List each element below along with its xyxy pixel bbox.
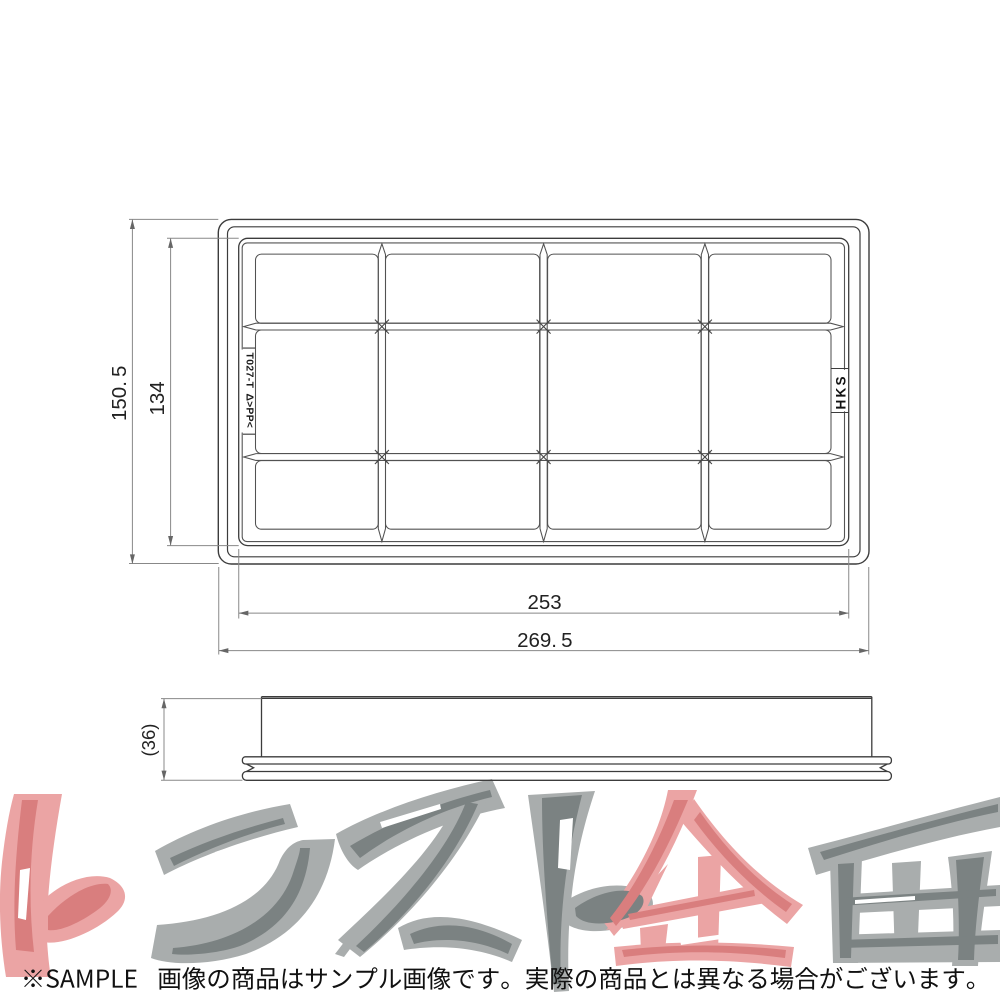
svg-text:T027-T: T027-T <box>244 353 255 389</box>
svg-text:253: 253 <box>527 591 561 614</box>
svg-text:269. 5: 269. 5 <box>517 629 572 652</box>
svg-text:(36): (36) <box>138 724 159 757</box>
svg-text:134: 134 <box>146 381 169 415</box>
svg-text:HKS: HKS <box>834 374 849 409</box>
svg-text:Δ>PP<: Δ>PP< <box>244 394 255 428</box>
svg-text:150. 5: 150. 5 <box>108 366 131 421</box>
